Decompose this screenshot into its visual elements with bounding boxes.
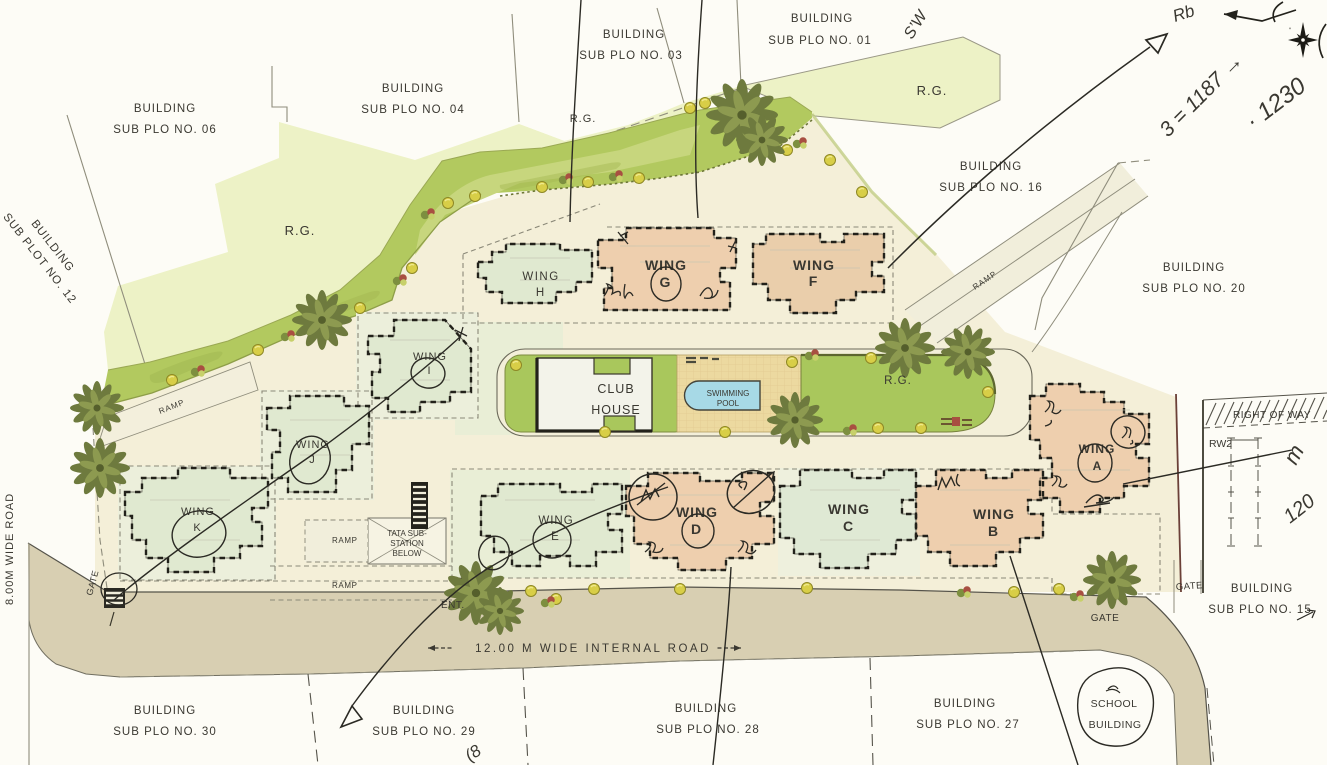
svg-text:WING: WING [645, 257, 687, 273]
svg-text:BUILDING: BUILDING [675, 703, 737, 715]
svg-text:GATE: GATE [1175, 580, 1203, 593]
svg-text:BUILDING: BUILDING [393, 705, 455, 717]
svg-text:SUB PLO NO. 30: SUB PLO NO. 30 [113, 726, 216, 738]
svg-text:BUILDING: BUILDING [603, 29, 665, 41]
svg-text:BUILDING: BUILDING [1089, 719, 1142, 731]
svg-text:BELOW: BELOW [393, 549, 422, 558]
svg-text:I: I [427, 365, 430, 377]
svg-text:D: D [691, 521, 701, 537]
svg-text:WING: WING [793, 257, 835, 273]
svg-text:RW2: RW2 [1209, 438, 1232, 450]
svg-text:12.00 M WIDE INTERNAL ROAD: 12.00 M WIDE INTERNAL ROAD [475, 643, 711, 655]
svg-text:SUB PLO NO. 01: SUB PLO NO. 01 [768, 35, 871, 47]
svg-text:CLUB: CLUB [597, 382, 634, 396]
svg-text:“: “ [1289, 28, 1291, 34]
svg-text:BUILDING: BUILDING [134, 103, 196, 115]
svg-text:SUB PLO NO. 29: SUB PLO NO. 29 [372, 726, 475, 738]
svg-text:RIGHT OF WAY: RIGHT OF WAY [1233, 410, 1311, 421]
svg-text:RAMP: RAMP [332, 581, 358, 590]
svg-text:G: G [660, 274, 671, 290]
svg-text:R.G.: R.G. [285, 223, 316, 238]
svg-text:F: F [809, 273, 818, 289]
svg-text:C: C [843, 518, 853, 534]
svg-text:A: A [1093, 459, 1102, 473]
svg-text:WING: WING [828, 501, 870, 517]
svg-text:SUB PLO NO. 03: SUB PLO NO. 03 [579, 50, 682, 62]
svg-text:BUILDING: BUILDING [134, 705, 196, 717]
svg-text:SUB PLO NO. 20: SUB PLO NO. 20 [1142, 283, 1245, 295]
svg-text:R.G.: R.G. [917, 83, 948, 98]
svg-text:SUB PLO NO. 28: SUB PLO NO. 28 [656, 724, 759, 736]
svg-text:SUB PLO NO. 27: SUB PLO NO. 27 [916, 719, 1019, 731]
svg-text:BUILDING: BUILDING [1163, 262, 1225, 274]
svg-text:GATE: GATE [1091, 613, 1119, 624]
svg-text:B: B [988, 523, 998, 539]
svg-text:POOL: POOL [717, 399, 740, 408]
svg-text:TATA SUB-: TATA SUB- [387, 529, 427, 538]
svg-text:RAMP: RAMP [332, 536, 358, 545]
svg-text:SCHOOL: SCHOOL [1091, 698, 1138, 710]
svg-text:K: K [193, 522, 201, 534]
svg-text:STATION: STATION [390, 539, 424, 548]
svg-text:WING: WING [973, 506, 1015, 522]
svg-text:WING: WING [538, 515, 573, 527]
svg-text:R.G.: R.G. [884, 375, 912, 387]
svg-text:SUB PLO NO. 16: SUB PLO NO. 16 [939, 182, 1042, 194]
svg-text:8.00M WIDE ROAD: 8.00M WIDE ROAD [4, 493, 16, 605]
svg-text:BUILDING: BUILDING [1231, 583, 1293, 595]
svg-text:SWIMMING: SWIMMING [707, 389, 750, 398]
svg-text:SUB PLO NO. 04: SUB PLO NO. 04 [361, 104, 464, 116]
svg-text:HOUSE: HOUSE [591, 403, 640, 417]
svg-text:WING: WING [676, 504, 718, 520]
svg-text:BUILDING: BUILDING [934, 698, 996, 710]
svg-text:BUILDING: BUILDING [791, 13, 853, 25]
svg-text:BUILDING: BUILDING [382, 83, 444, 95]
svg-text:SUB PLO NO. 15: SUB PLO NO. 15 [1208, 604, 1311, 616]
svg-text:SUB PLO NO. 06: SUB PLO NO. 06 [113, 124, 216, 136]
svg-text:H: H [536, 287, 544, 299]
svg-text:WING: WING [522, 271, 559, 283]
